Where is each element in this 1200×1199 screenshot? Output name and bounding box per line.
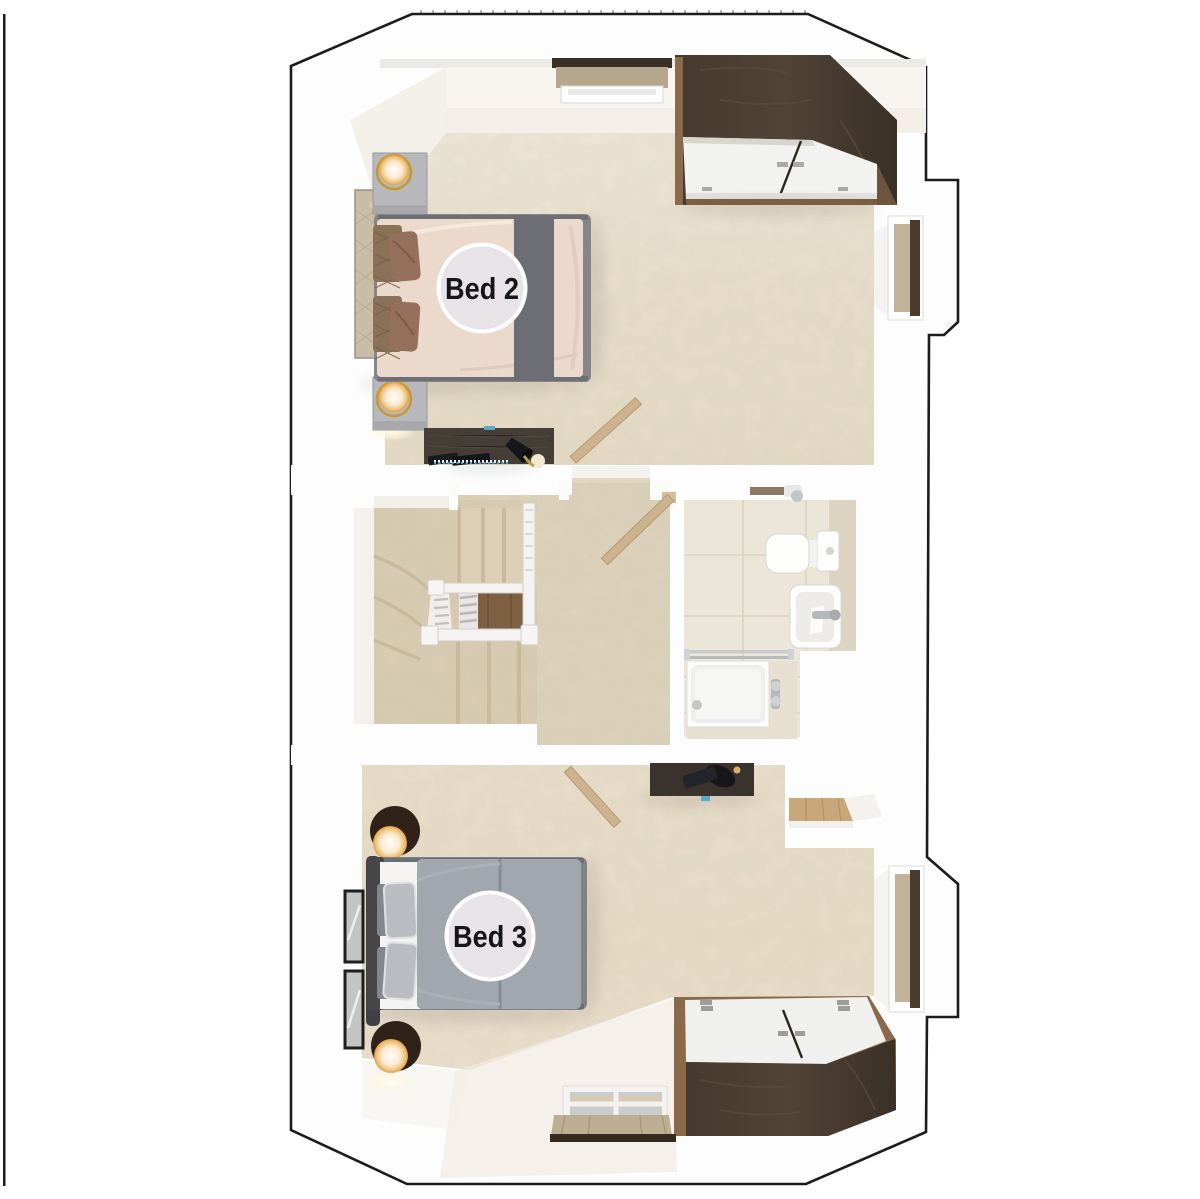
svg-text:Bed 3: Bed 3 [453,919,527,954]
svg-text:Bed 2: Bed 2 [445,271,519,306]
